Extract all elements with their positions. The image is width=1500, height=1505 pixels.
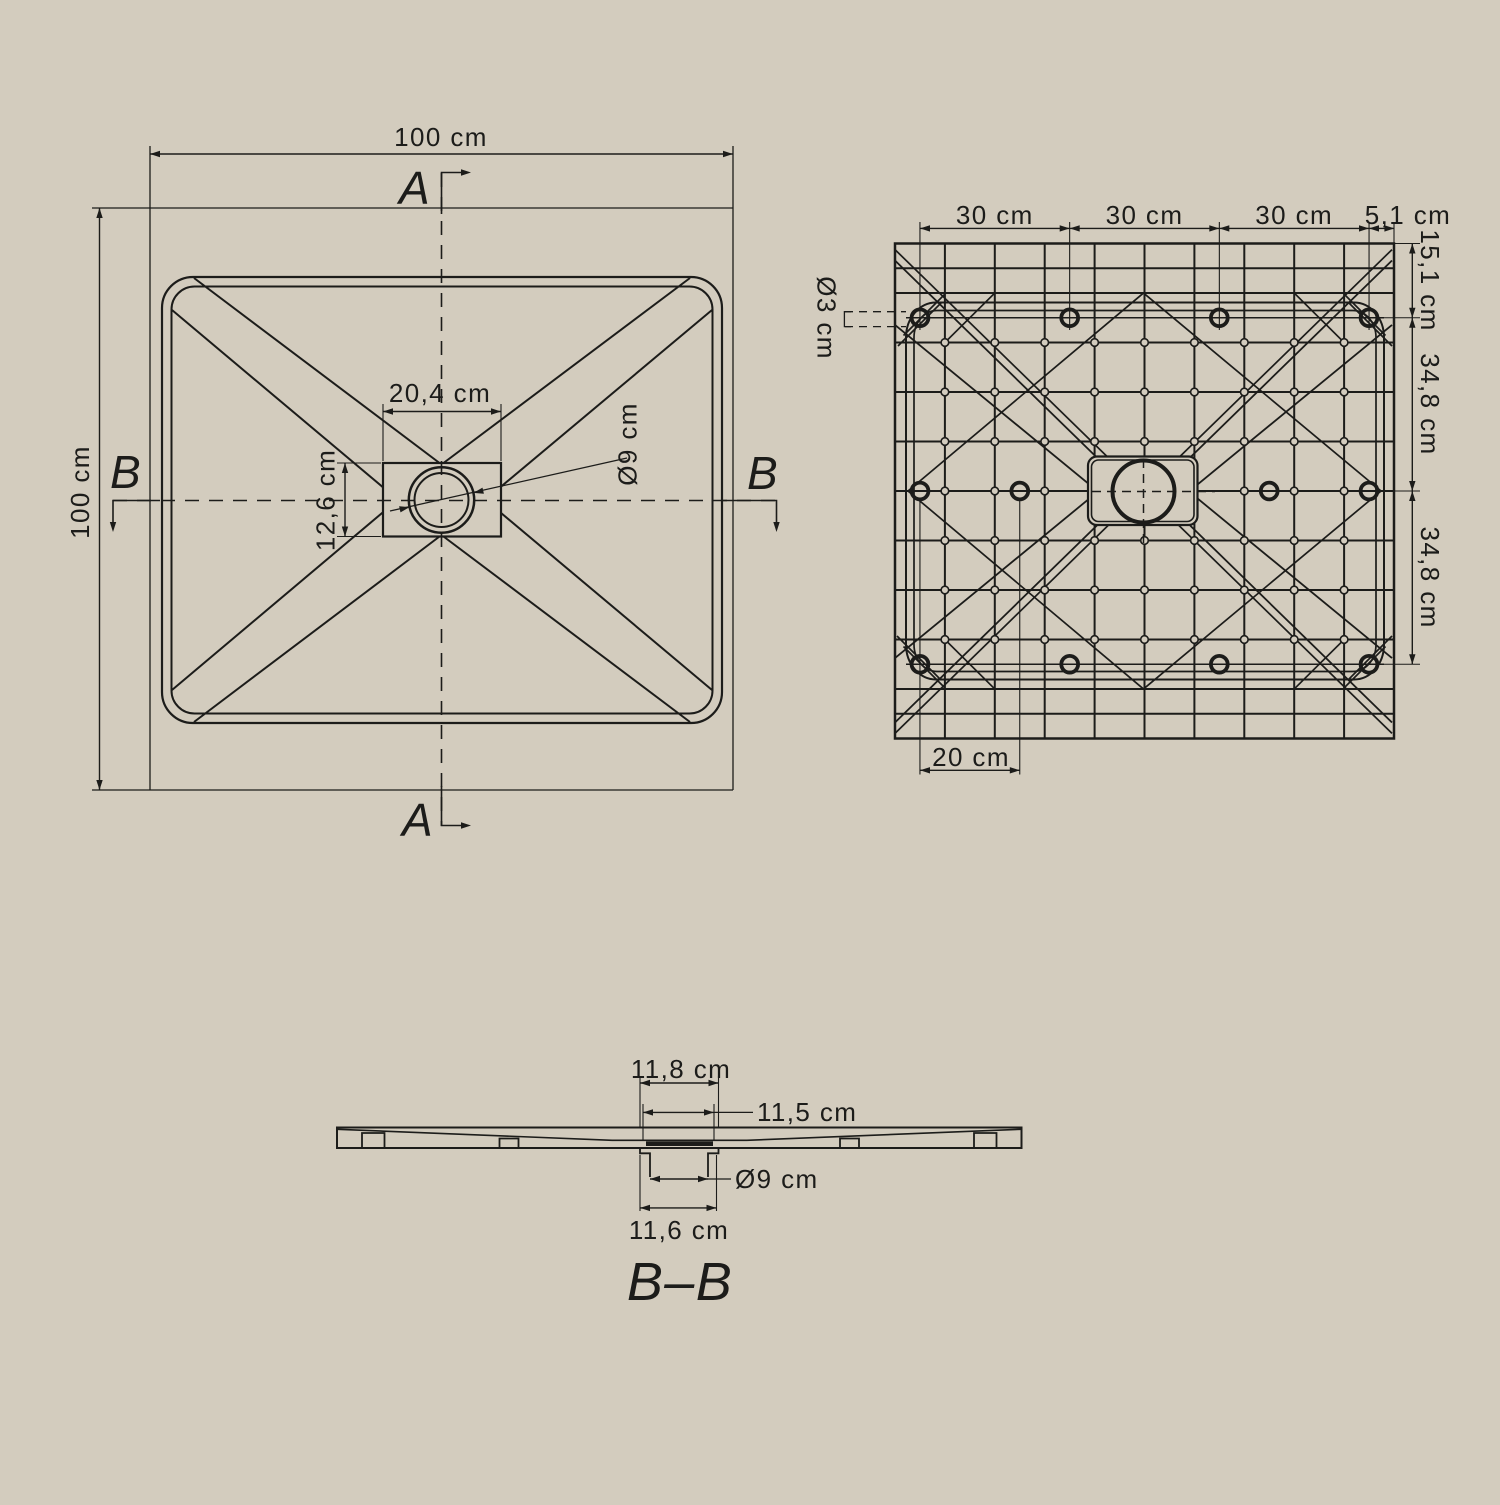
svg-text:11,8 cm: 11,8 cm [631,1054,731,1084]
svg-text:34,8 cm: 34,8 cm [1415,526,1445,628]
svg-text:100 cm: 100 cm [65,445,95,539]
svg-text:Ø9 cm: Ø9 cm [612,402,642,486]
svg-text:30 cm: 30 cm [1106,200,1184,230]
svg-text:5,1 cm: 5,1 cm [1365,200,1451,230]
svg-text:20,4 cm: 20,4 cm [389,378,491,408]
svg-text:B–B: B–B [627,1252,733,1312]
svg-text:B: B [110,446,142,498]
svg-text:15,1 cm: 15,1 cm [1415,229,1445,331]
svg-text:12,6 cm: 12,6 cm [310,449,340,551]
svg-text:Ø9 cm: Ø9 cm [735,1164,819,1194]
svg-text:11,6 cm: 11,6 cm [629,1215,729,1245]
svg-text:B: B [747,447,779,499]
svg-text:30 cm: 30 cm [1255,200,1333,230]
svg-text:A: A [399,794,434,846]
svg-text:A: A [396,162,431,214]
svg-text:30 cm: 30 cm [956,200,1034,230]
svg-text:Ø3 cm: Ø3 cm [812,276,842,360]
svg-text:11,5 cm: 11,5 cm [757,1097,857,1127]
svg-text:100 cm: 100 cm [394,122,488,152]
svg-text:20 cm: 20 cm [932,742,1010,772]
svg-text:34,8 cm: 34,8 cm [1415,353,1445,455]
